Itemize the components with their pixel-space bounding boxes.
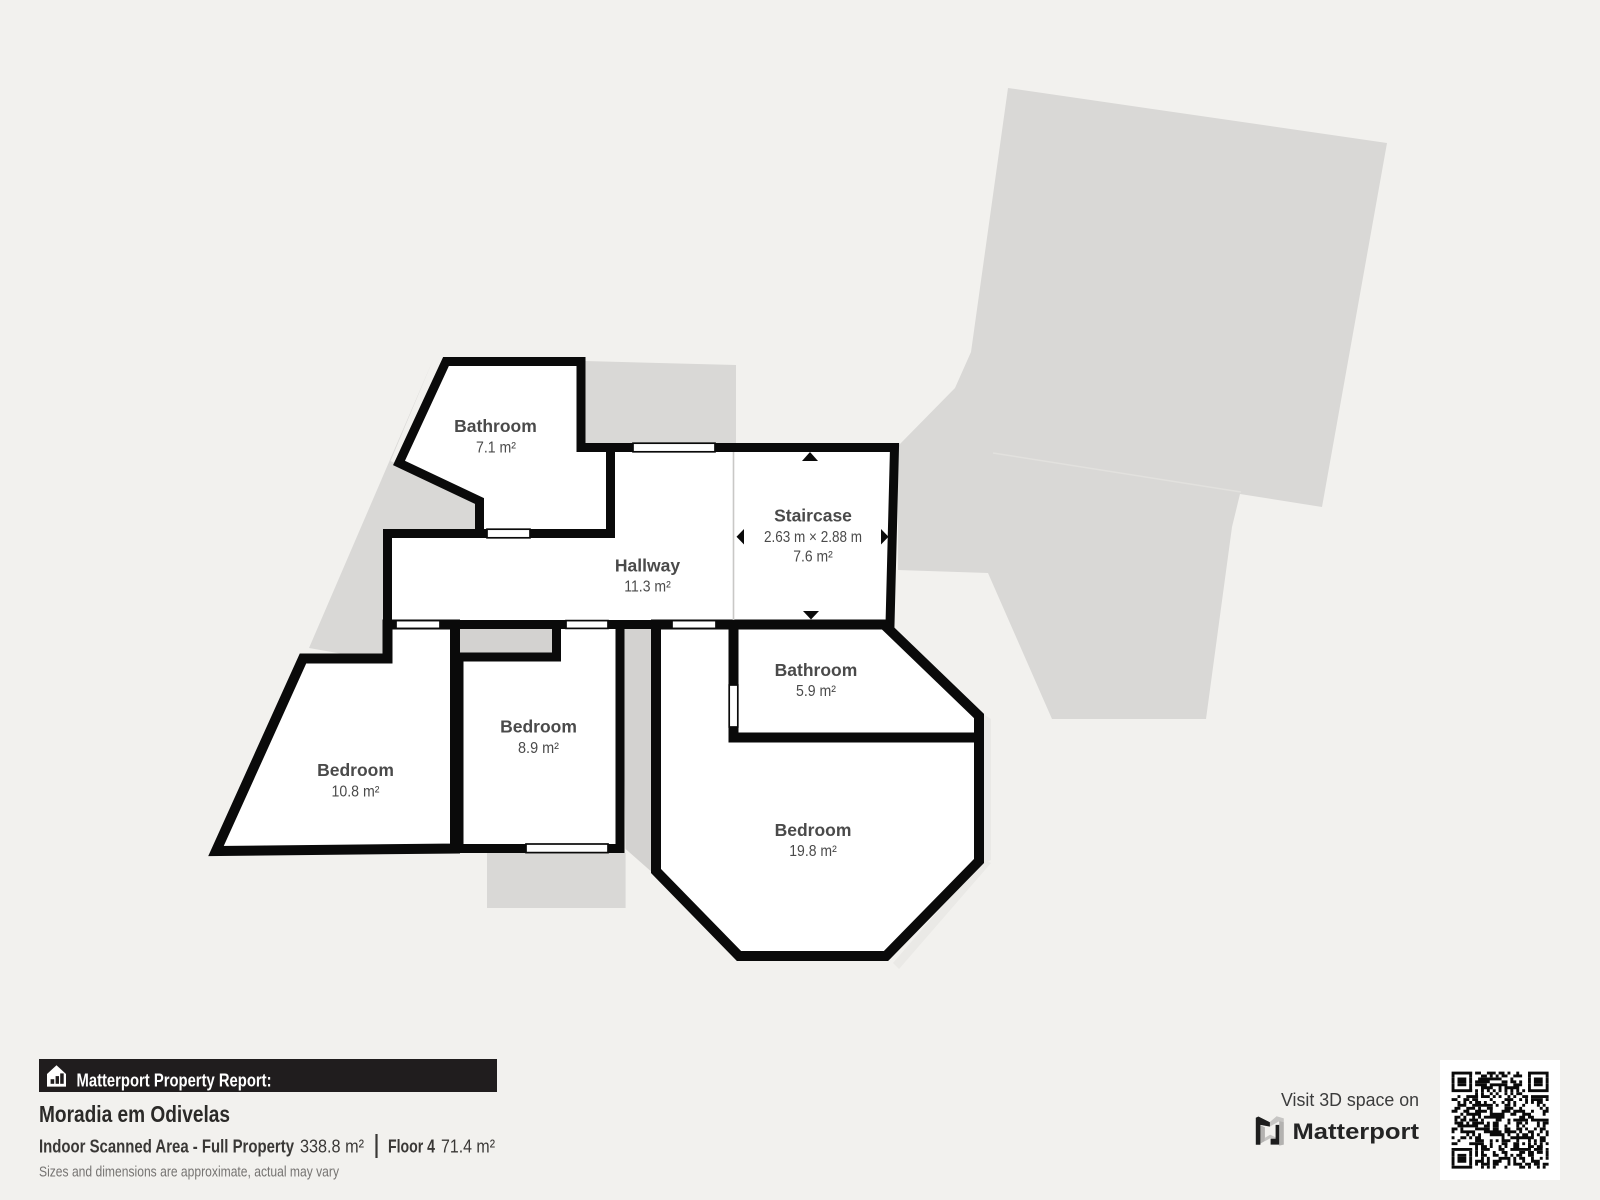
svg-text:Matterport: Matterport	[1293, 1119, 1420, 1144]
svg-text:Bedroom: Bedroom	[500, 717, 577, 737]
svg-text:Visit 3D space on: Visit 3D space on	[1281, 1090, 1419, 1110]
svg-text:Staircase: Staircase	[774, 506, 852, 526]
svg-text:5.9 m²: 5.9 m²	[796, 683, 836, 700]
svg-text:Bathroom: Bathroom	[775, 660, 858, 680]
svg-text:Indoor Scanned Area - Full Pro: Indoor Scanned Area - Full Property	[39, 1136, 295, 1157]
svg-text:7.1 m²: 7.1 m²	[476, 440, 516, 457]
svg-text:71.4 m²: 71.4 m²	[441, 1136, 495, 1157]
svg-text:Bedroom: Bedroom	[775, 820, 852, 840]
svg-text:Floor 4: Floor 4	[388, 1136, 436, 1157]
svg-text:8.9 m²: 8.9 m²	[518, 740, 559, 757]
svg-text:Moradia em Odivelas: Moradia em Odivelas	[39, 1101, 230, 1127]
svg-text:10.8 m²: 10.8 m²	[332, 784, 380, 801]
svg-text:19.8 m²: 19.8 m²	[789, 843, 837, 860]
svg-text:2.63 m × 2.88 m: 2.63 m × 2.88 m	[764, 529, 862, 546]
svg-text:Bathroom: Bathroom	[454, 416, 537, 436]
svg-text:Matterport Property Report:: Matterport Property Report:	[77, 1070, 272, 1090]
svg-text:Hallway: Hallway	[615, 556, 680, 576]
svg-text:7.6 m²: 7.6 m²	[793, 549, 833, 566]
svg-text:Bedroom: Bedroom	[317, 760, 394, 780]
svg-text:338.8 m²: 338.8 m²	[300, 1136, 364, 1157]
svg-text:11.3 m²: 11.3 m²	[624, 579, 671, 596]
svg-text:Sizes and dimensions are appro: Sizes and dimensions are approximate, ac…	[39, 1165, 340, 1181]
